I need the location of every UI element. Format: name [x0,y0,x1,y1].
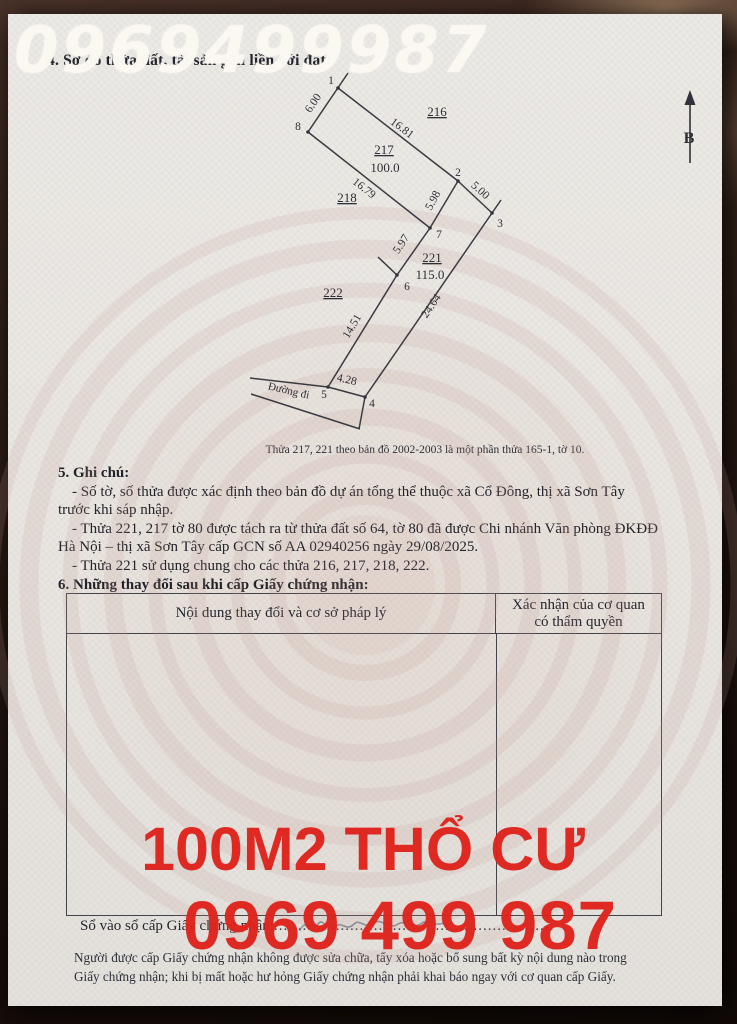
point-5: 5 [321,389,327,401]
north-label: B [684,130,695,147]
point-4: 4 [369,398,375,410]
photo-of-land-certificate: 6.00 16.81 16.79 5.00 5.98 5.97 24.64 14… [0,0,737,1024]
parcel-217: 217 [374,142,394,157]
point-2: 2 [455,167,461,179]
point-6: 6 [404,281,410,293]
dim-5.98: 5.98 [423,189,443,213]
parcel-221: 221 [422,250,442,265]
point-7: 7 [436,229,442,241]
dim-4.28: 4.28 [336,372,359,388]
parcel-boundary-lines [250,73,501,429]
north-arrow-icon: B [684,90,696,163]
parcel-216: 216 [427,104,447,119]
red-area-watermark: 100M2 THỔ CƯ [128,814,598,884]
dim-5.97: 5.97 [391,232,412,256]
dim-14.51: 14.51 [341,312,365,341]
red-phone-watermark: 0969 499 987 [148,886,652,965]
parcel-218: 218 [337,190,357,205]
point-3: 3 [497,218,503,230]
point-8: 8 [295,121,301,133]
dim-5.00: 5.00 [469,180,492,203]
parcel-221-area: 115.0 [416,267,445,282]
top-phone-watermark: 0969499987 [14,14,444,88]
dim-24.64: 24.64 [419,292,444,320]
parcel-222: 222 [323,285,343,300]
parcel-217-area: 100.0 [370,160,399,175]
